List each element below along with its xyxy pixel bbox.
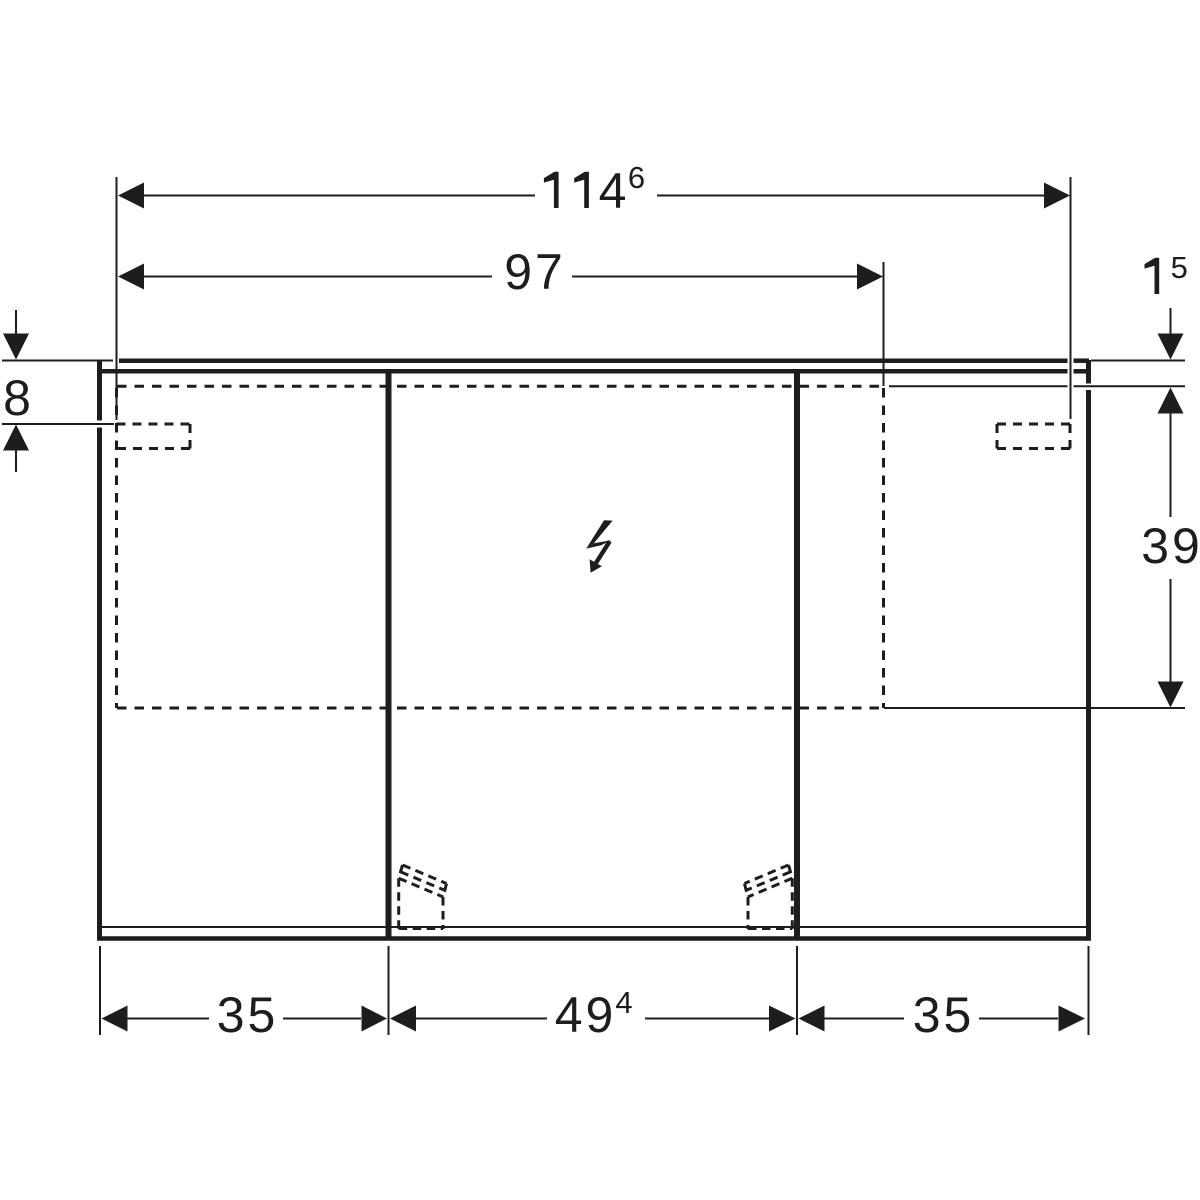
svg-text:39: 39 [1141, 518, 1200, 574]
svg-text:35: 35 [913, 987, 975, 1043]
svg-text:35: 35 [217, 987, 279, 1043]
svg-text:49: 49 [555, 987, 617, 1043]
svg-text:4: 4 [615, 985, 632, 1020]
svg-text:6: 6 [628, 160, 645, 195]
svg-text:97: 97 [504, 244, 566, 300]
svg-text:5: 5 [1171, 250, 1188, 285]
svg-text:8: 8 [3, 370, 31, 426]
svg-text:4: 4 [599, 163, 627, 219]
